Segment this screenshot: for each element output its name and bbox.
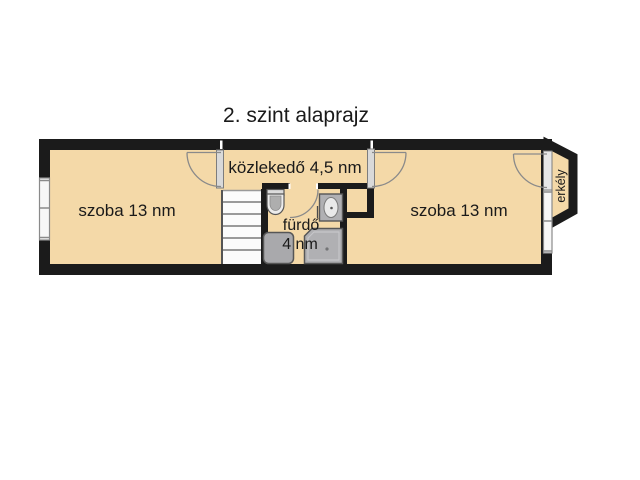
page-title: 2. szint alaprajz [223,104,369,127]
bathroom-top-wall-right [318,183,374,189]
door-frame-balcony [544,151,553,190]
left-room-label: szoba 13 nm [78,201,175,220]
bathroom-top-wall-left [262,183,290,189]
joint-tick [371,141,374,150]
joint-tick [289,184,291,190]
joint-tick [316,184,318,190]
bathroom-label: fürdő [283,217,320,234]
corridor-label: közlekedő 4,5 nm [228,158,361,177]
floor-plan-page: 2. szint alaprajz [0,0,640,480]
right-room-label: szoba 13 nm [410,201,507,220]
window-icon [40,178,50,240]
door-frame-left-room [217,150,224,188]
stairs-icon [222,190,261,264]
bathroom-area-label: 4 nm [282,236,318,253]
duct-bottom-wall [340,212,374,218]
joint-tick [220,141,223,150]
floor-plan-canvas: 2. szint alaprajz [0,0,640,480]
toilet-icon [267,190,284,215]
door-frame-right-room [368,149,375,188]
sink-icon [320,194,343,221]
window-icon [544,190,553,253]
balcony-label: erkély [554,169,568,203]
